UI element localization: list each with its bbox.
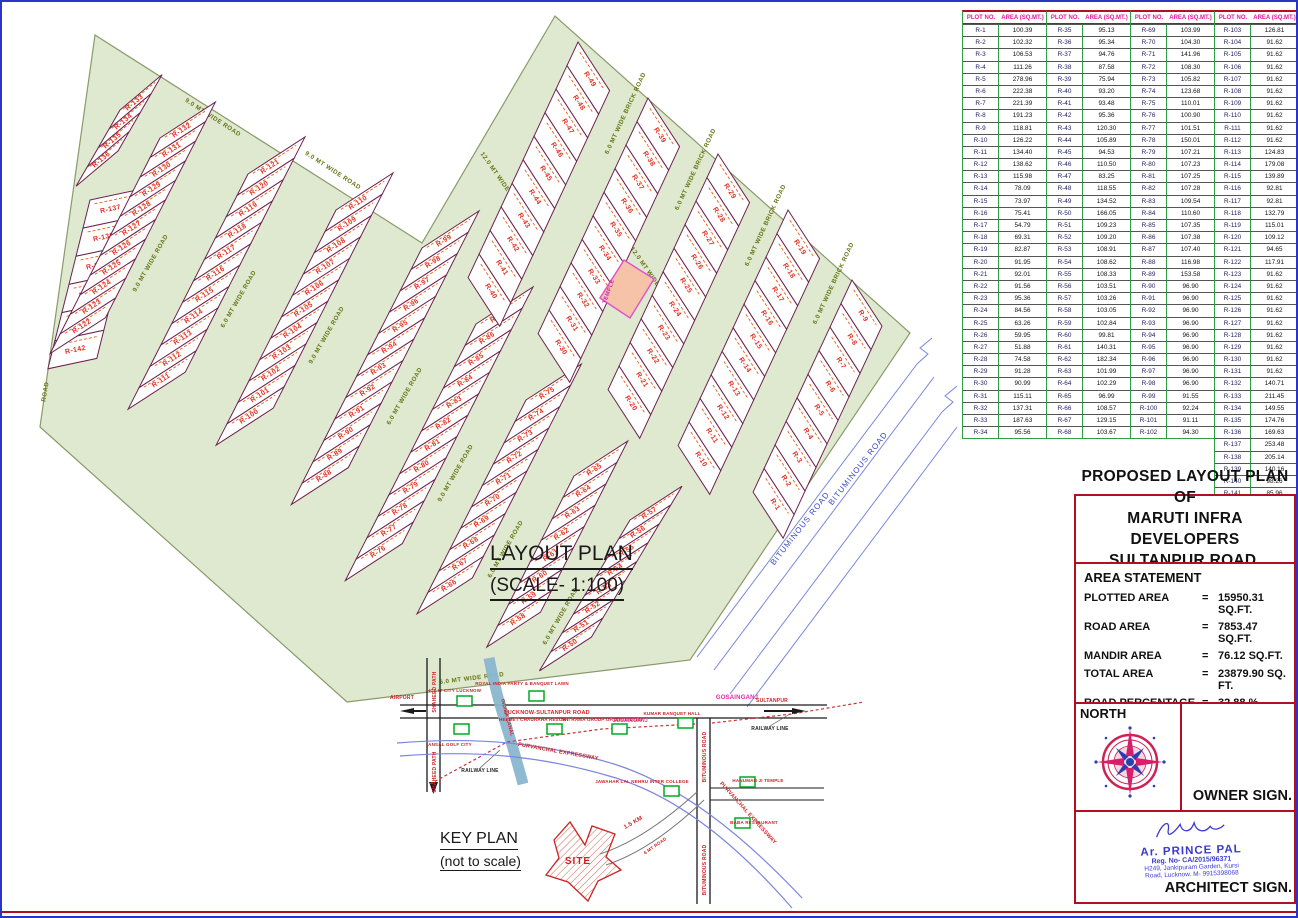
key-plan-title: KEY PLAN — [440, 830, 518, 850]
plot-no-cell: R-71 — [1131, 48, 1167, 60]
area-cell: 107.25 — [1167, 170, 1214, 182]
plot-no-cell: R-120 — [1215, 231, 1251, 243]
plot-no-cell: R-45 — [1047, 146, 1083, 158]
area-cell: 95.34 — [1083, 36, 1130, 48]
plot-no-cell: R-40 — [1047, 85, 1083, 97]
plot-no-cell: R-85 — [1131, 219, 1167, 231]
plot-no-cell: R-129 — [1215, 341, 1251, 353]
area-cell: 91.62 — [1251, 48, 1298, 60]
area-cell: 110.50 — [1083, 158, 1130, 170]
plot-no-cell: R-123 — [1215, 268, 1251, 280]
drawing-sheet: BITUMINOUS ROADBITUMINOUS ROAD9.0 MT WID… — [0, 0, 1298, 918]
area-cell: 95.36 — [1083, 109, 1130, 121]
area-statement-text: 76.12 SQ.FT. — [1218, 650, 1286, 662]
area-cell: 191.23 — [999, 109, 1046, 121]
plot-no-cell: R-36 — [1047, 36, 1083, 48]
plot-no-cell: R-84 — [1131, 207, 1167, 219]
area-statement-row: PLOTTED AREA=15950.31 SQ.FT. — [1084, 592, 1286, 616]
plot-no-cell: R-74 — [1131, 85, 1167, 97]
plot-no-cell: R-4 — [963, 61, 999, 73]
area-cell: 91.62 — [1251, 292, 1298, 304]
area-cell: 91.95 — [999, 256, 1046, 268]
area-statement: AREA STATEMENT PLOTTED AREA=15950.31 SQ.… — [1074, 562, 1296, 704]
plot-no-cell: R-62 — [1047, 353, 1083, 365]
area-cell: 73.97 — [999, 195, 1046, 207]
area-cell: 140.31 — [1083, 341, 1130, 353]
key-plan-label: GOSAINGANJ — [716, 695, 758, 701]
layout-plan-scale: (SCALE- 1:100) — [490, 575, 624, 601]
area-cell: 93.20 — [1083, 85, 1130, 97]
plot-no-cell: R-109 — [1215, 97, 1251, 109]
area-cell: 211.45 — [1251, 390, 1298, 402]
plot-no-cell: R-42 — [1047, 109, 1083, 121]
area-cell: 96.90 — [1167, 329, 1214, 341]
plot-no-cell: R-102 — [1131, 426, 1167, 438]
plot-no-cell: R-23 — [963, 292, 999, 304]
area-cell: 96.90 — [1167, 304, 1214, 316]
area-cell: 95.13 — [1083, 24, 1130, 36]
area-cell: 51.88 — [999, 341, 1046, 353]
plot-no-cell: R-31 — [963, 390, 999, 402]
layout-plan-title-block: LAYOUT PLAN (SCALE- 1:100) — [490, 542, 633, 601]
plot-no-cell: R-29 — [963, 365, 999, 377]
area-cell: 101.99 — [1083, 365, 1130, 377]
area-cell: 108.33 — [1083, 268, 1130, 280]
area-cell: 96.90 — [1167, 317, 1214, 329]
plot-no-cell: R-59 — [1047, 317, 1083, 329]
north-label: NORTH — [1080, 706, 1126, 721]
plot-no-cell: R-92 — [1131, 304, 1167, 316]
key-plan-label: BITUMINOUS ROAD — [702, 731, 708, 782]
plot-no-cell: R-53 — [1047, 243, 1083, 255]
plot-no-cell: R-131 — [1215, 365, 1251, 377]
area-cell: 106.53 — [999, 48, 1046, 60]
plot-no-cell: R-86 — [1131, 231, 1167, 243]
area-cell: 103.99 — [1167, 24, 1214, 36]
area-cell: 108.91 — [1083, 243, 1130, 255]
key-plan-label: ROYAL INDIA PARTY & BANQUET LAWN — [475, 681, 569, 686]
area-statement-text: = — [1202, 668, 1218, 692]
key-plan-label: HCL IT CITY LUCKNOW — [427, 688, 482, 693]
plot-no-cell: R-7 — [963, 97, 999, 109]
plot-no-cell: R-89 — [1131, 268, 1167, 280]
plot-no-cell: R-121 — [1215, 243, 1251, 255]
area-cell: 91.62 — [1251, 85, 1298, 97]
plot-no-cell: R-88 — [1131, 256, 1167, 268]
landmark-box — [612, 724, 627, 734]
sheet-frame-rule — [2, 911, 1296, 913]
plot-no-cell: R-90 — [1131, 280, 1167, 292]
owner-sign-label: OWNER SIGN. — [1182, 788, 1292, 804]
road-break-icon — [917, 338, 932, 364]
area-cell: 107.35 — [1167, 219, 1214, 231]
key-plan-label: PURVANCHAL EXPRESSWAY — [718, 781, 777, 846]
area-cell: 93.48 — [1083, 97, 1130, 109]
area-cell: 134.52 — [1083, 195, 1130, 207]
plot-no-header: PLOT NO. — [1047, 12, 1083, 24]
plot-no-cell: R-49 — [1047, 195, 1083, 207]
area-cell: 108.57 — [1083, 402, 1130, 414]
area-cell: 115.11 — [999, 390, 1046, 402]
plot-no-cell: R-91 — [1131, 292, 1167, 304]
area-cell: 96.90 — [1167, 341, 1214, 353]
plot-no-cell: R-97 — [1131, 365, 1167, 377]
area-cell: 109.20 — [1083, 231, 1130, 243]
key-road — [606, 800, 704, 865]
plot-no-cell: R-11 — [963, 146, 999, 158]
plot-no-cell: R-108 — [1215, 85, 1251, 97]
area-cell: 91.62 — [1251, 341, 1298, 353]
key-plan-label: BABA RESTAURANT — [730, 820, 778, 825]
plot-no-cell: R-48 — [1047, 182, 1083, 194]
title-line-1: PROPOSED LAYOUT PLAN OF — [1076, 466, 1294, 508]
plot-no-cell: R-34 — [963, 426, 999, 438]
plot-no-cell: R-107 — [1215, 73, 1251, 85]
landmark-box — [457, 696, 472, 706]
plot-no-cell: R-112 — [1215, 134, 1251, 146]
plot-no-cell: R-57 — [1047, 292, 1083, 304]
plot-no-cell: R-117 — [1215, 195, 1251, 207]
plot-no-cell: R-35 — [1047, 24, 1083, 36]
area-cell: 110.01 — [1167, 97, 1214, 109]
area-cell: 91.62 — [1251, 134, 1298, 146]
plot-no-cell: R-93 — [1131, 317, 1167, 329]
plot-no-cell: R-64 — [1047, 377, 1083, 389]
area-cell: 205.14 — [1251, 451, 1298, 463]
plot-no-cell: R-2 — [963, 36, 999, 48]
plot-no-cell: R-56 — [1047, 280, 1083, 292]
area-cell: 91.28 — [999, 365, 1046, 377]
plot-no-cell: R-16 — [963, 207, 999, 219]
area-cell: 91.62 — [1251, 36, 1298, 48]
area-cell: 221.39 — [999, 97, 1046, 109]
plot-no-cell: R-124 — [1215, 280, 1251, 292]
plot-no-cell: R-104 — [1215, 36, 1251, 48]
signature-icon — [1150, 819, 1231, 842]
plot-no-header: PLOT NO. — [963, 12, 999, 24]
area-cell: 105.82 — [1167, 73, 1214, 85]
area-cell: 109.23 — [1083, 219, 1130, 231]
area-cell: 84.56 — [999, 304, 1046, 316]
area-cell: 91.62 — [1251, 109, 1298, 121]
area-cell: 132.79 — [1251, 207, 1298, 219]
plot-no-cell: R-52 — [1047, 231, 1083, 243]
plot-no-cell: R-136 — [1215, 426, 1251, 438]
plot-no-cell: R-116 — [1215, 182, 1251, 194]
plot-no-cell: R-47 — [1047, 170, 1083, 182]
key-plan-label: LUCKNOW-SULTANPUR ROAD — [504, 710, 590, 716]
area-cell: 153.58 — [1167, 268, 1214, 280]
area-statement-text: TOTAL AREA — [1084, 668, 1202, 692]
plot-no-cell: R-3 — [963, 48, 999, 60]
plot-no-cell: R-58 — [1047, 304, 1083, 316]
plot-no-cell: R-137 — [1215, 438, 1251, 450]
area-cell: 95.56 — [999, 426, 1046, 438]
plot-table-column: PLOT NO.AREA (SQ.MT.)R-69103.99R-70104.3… — [1130, 10, 1215, 439]
plot-no-header: PLOT NO. — [1131, 12, 1167, 24]
area-cell: 87.58 — [1083, 61, 1130, 73]
plot-no-cell: R-70 — [1131, 36, 1167, 48]
plot-no-cell: R-100 — [1131, 402, 1167, 414]
plot-table-column: PLOT NO.AREA (SQ.MT.)R-3595.13R-3695.34R… — [1046, 10, 1131, 439]
plot-no-cell: R-19 — [963, 243, 999, 255]
area-cell: 103.67 — [1083, 426, 1130, 438]
plot-no-cell: R-22 — [963, 280, 999, 292]
area-cell: 83.25 — [1083, 170, 1130, 182]
layout-plan-title: LAYOUT PLAN — [490, 542, 633, 570]
area-cell: 107.28 — [1167, 182, 1214, 194]
area-statement-title: AREA STATEMENT — [1084, 570, 1286, 585]
area-cell: 91.62 — [1251, 365, 1298, 377]
plot-no-cell: R-83 — [1131, 195, 1167, 207]
plot-no-cell: R-82 — [1131, 182, 1167, 194]
plot-no-cell: R-51 — [1047, 219, 1083, 231]
area-cell: 100.90 — [1167, 109, 1214, 121]
architect-stamp: Ar. PRINCE PAL Reg. No- CA/2015/96371 H2… — [1105, 817, 1277, 881]
area-cell: 118.81 — [999, 122, 1046, 134]
landmark-box — [678, 718, 693, 728]
area-cell: 110.60 — [1167, 207, 1214, 219]
plot-no-cell: R-12 — [963, 158, 999, 170]
key-plan-label: SULTANPUR — [756, 698, 788, 704]
area-cell: 116.98 — [1167, 256, 1214, 268]
key-plan-label: RAILWAY LINE — [461, 768, 499, 774]
area-cell: 91.62 — [1251, 317, 1298, 329]
area-cell: 99.81 — [1083, 329, 1130, 341]
area-cell: 102.32 — [999, 36, 1046, 48]
plot-no-cell: R-99 — [1131, 390, 1167, 402]
plot-no-cell: R-103 — [1215, 24, 1251, 36]
area-cell: 69.31 — [999, 231, 1046, 243]
area-cell: 91.62 — [1251, 61, 1298, 73]
plot-no-cell: R-50 — [1047, 207, 1083, 219]
plot-no-cell: R-68 — [1047, 426, 1083, 438]
plot-no-cell: R-94 — [1131, 329, 1167, 341]
plot-no-cell: R-15 — [963, 195, 999, 207]
plot-no-cell: R-54 — [1047, 256, 1083, 268]
area-cell: 104.30 — [1167, 36, 1214, 48]
plot-no-cell: R-77 — [1131, 122, 1167, 134]
area-cell: 138.62 — [999, 158, 1046, 170]
area-cell: 91.62 — [1251, 329, 1298, 341]
site-marker-label: SITE — [565, 856, 591, 867]
plot-no-cell: R-134 — [1215, 402, 1251, 414]
plot-no-cell: R-24 — [963, 304, 999, 316]
plot-no-cell: R-27 — [963, 341, 999, 353]
area-statement-row: TOTAL AREA=23879.90 SQ. FT. — [1084, 668, 1286, 692]
area-cell: 94.76 — [1083, 48, 1130, 60]
key-plan-label: AIRPORT — [390, 695, 414, 701]
area-cell: 75.94 — [1083, 73, 1130, 85]
key-plan-label: ANSAL GOLF CITY — [428, 742, 472, 747]
plot-no-cell: R-110 — [1215, 109, 1251, 121]
plot-no-cell: R-25 — [963, 317, 999, 329]
plot-no-cell: R-65 — [1047, 390, 1083, 402]
plot-no-cell: R-10 — [963, 134, 999, 146]
road-break-icon — [942, 386, 957, 412]
area-statement-text: PLOTTED AREA — [1084, 592, 1202, 616]
area-cell: 118.55 — [1083, 182, 1130, 194]
plot-no-cell: R-127 — [1215, 317, 1251, 329]
plot-no-cell: R-67 — [1047, 414, 1083, 426]
area-cell: 107.21 — [1167, 146, 1214, 158]
plot-no-cell: R-130 — [1215, 353, 1251, 365]
area-cell: 108.30 — [1167, 61, 1214, 73]
area-cell: 141.96 — [1167, 48, 1214, 60]
area-cell: 150.01 — [1167, 134, 1214, 146]
plot-no-cell: R-138 — [1215, 451, 1251, 463]
key-plan-label: SHAHEED PATH — [432, 751, 438, 792]
key-plan-label: SRI RAMA GROUP OF INSTITUTES — [562, 717, 642, 722]
area-cell: 91.56 — [999, 280, 1046, 292]
plot-no-cell: R-8 — [963, 109, 999, 121]
plot-no-cell: R-87 — [1131, 243, 1167, 255]
key-plan-label: HANUMAN JI TEMPLE — [732, 778, 783, 783]
key-plan-label: 1.5 KM — [623, 815, 644, 830]
area-statement-text: = — [1202, 650, 1218, 662]
key-plan-label: BITUMINOUS ROAD — [702, 844, 708, 895]
area-cell: 102.84 — [1083, 317, 1130, 329]
area-cell: 109.54 — [1167, 195, 1214, 207]
area-cell: 95.36 — [999, 292, 1046, 304]
area-cell: 91.62 — [1251, 304, 1298, 316]
area-cell: 96.90 — [1167, 377, 1214, 389]
title-line-2: MARUTI INFRA DEVELOPERS — [1076, 508, 1294, 550]
plot-no-cell: R-5 — [963, 73, 999, 85]
area-cell: 91.62 — [1251, 97, 1298, 109]
area-cell: 174.76 — [1251, 414, 1298, 426]
plot-no-cell: R-101 — [1131, 414, 1167, 426]
area-cell: 75.41 — [999, 207, 1046, 219]
area-cell: 82.87 — [999, 243, 1046, 255]
area-cell: 109.12 — [1251, 231, 1298, 243]
area-cell: 74.58 — [999, 353, 1046, 365]
area-statement-text: 15950.31 SQ.FT. — [1218, 592, 1286, 616]
plot-no-cell: R-37 — [1047, 48, 1083, 60]
plot-no-cell: R-128 — [1215, 329, 1251, 341]
area-statement-text: MANDIR AREA — [1084, 650, 1202, 662]
plot-no-cell: R-80 — [1131, 158, 1167, 170]
plot-no-cell: R-60 — [1047, 329, 1083, 341]
area-cell: 92.81 — [1251, 182, 1298, 194]
area-cell: 126.81 — [1251, 24, 1298, 36]
plot-no-cell: R-26 — [963, 329, 999, 341]
area-cell: 54.79 — [999, 219, 1046, 231]
area-statement-row: MANDIR AREA=76.12 SQ.FT. — [1084, 650, 1286, 662]
plot-no-cell: R-113 — [1215, 146, 1251, 158]
plot-no-cell: R-41 — [1047, 97, 1083, 109]
area-cell: 129.15 — [1083, 414, 1130, 426]
plot-no-cell: R-111 — [1215, 122, 1251, 134]
key-plan-label: RAILWAY LINE — [751, 726, 789, 732]
key-plan-subtitle: (not to scale) — [440, 853, 521, 871]
area-statement-row: ROAD AREA=7853.47 SQ.FT. — [1084, 621, 1286, 645]
plot-no-cell: R-9 — [963, 122, 999, 134]
plot-no-cell: R-28 — [963, 353, 999, 365]
area-cell: 59.95 — [999, 329, 1046, 341]
area-cell: 115.98 — [999, 170, 1046, 182]
area-statement-text: ROAD AREA — [1084, 621, 1202, 645]
plot-no-cell: R-119 — [1215, 219, 1251, 231]
plot-no-cell: R-17 — [963, 219, 999, 231]
architect-sign-label: ARCHITECT SIGN. — [1142, 880, 1292, 896]
plot-table-column: PLOT NO.AREA (SQ.MT.)R-103126.81R-10491.… — [1214, 10, 1298, 513]
area-statement-text: 23879.90 SQ. FT. — [1218, 668, 1286, 692]
plot-no-cell: R-14 — [963, 182, 999, 194]
area-cell: 179.08 — [1251, 158, 1298, 170]
area-cell: 107.38 — [1167, 231, 1214, 243]
area-cell: 137.31 — [999, 402, 1046, 414]
area-cell: 92.01 — [999, 268, 1046, 280]
title-block: PROPOSED LAYOUT PLAN OF MARUTI INFRA DEV… — [1074, 494, 1296, 564]
area-cell: 103.05 — [1083, 304, 1130, 316]
plot-no-cell: R-18 — [963, 231, 999, 243]
plot-no-cell: R-133 — [1215, 390, 1251, 402]
area-cell: 78.09 — [999, 182, 1046, 194]
plot-no-cell: R-132 — [1215, 377, 1251, 389]
plot-no-cell: R-122 — [1215, 256, 1251, 268]
plot-no-cell: R-55 — [1047, 268, 1083, 280]
area-statement-text: 7853.47 SQ.FT. — [1218, 621, 1286, 645]
area-header: AREA (SQ.MT.) — [1251, 12, 1298, 24]
landmark-box — [547, 724, 562, 734]
area-cell: 120.30 — [1083, 122, 1130, 134]
plot-no-cell: R-1 — [963, 24, 999, 36]
area-cell: 105.89 — [1083, 134, 1130, 146]
area-cell: 101.51 — [1167, 122, 1214, 134]
plot-no-cell: R-39 — [1047, 73, 1083, 85]
plot-no-cell: R-21 — [963, 268, 999, 280]
area-cell: 134.40 — [999, 146, 1046, 158]
area-cell: 139.89 — [1251, 170, 1298, 182]
area-cell: 140.71 — [1251, 377, 1298, 389]
area-cell: 182.34 — [1083, 353, 1130, 365]
plot-no-header: PLOT NO. — [1215, 12, 1251, 24]
area-cell: 91.62 — [1251, 353, 1298, 365]
plot-no-cell: R-43 — [1047, 122, 1083, 134]
area-cell: 91.62 — [1251, 73, 1298, 85]
plot-no-cell: R-95 — [1131, 341, 1167, 353]
area-cell: 94.30 — [1167, 426, 1214, 438]
plot-no-cell: R-61 — [1047, 341, 1083, 353]
arrow-right-icon — [792, 708, 806, 714]
area-cell: 169.63 — [1251, 426, 1298, 438]
area-cell: 92.81 — [1251, 195, 1298, 207]
area-cell: 222.38 — [999, 85, 1046, 97]
plot-no-cell: R-38 — [1047, 61, 1083, 73]
leader-line — [480, 750, 500, 768]
area-cell: 166.05 — [1083, 207, 1130, 219]
plot-no-cell: R-96 — [1131, 353, 1167, 365]
area-header: AREA (SQ.MT.) — [999, 12, 1046, 24]
area-cell: 115.01 — [1251, 219, 1298, 231]
area-cell: 96.90 — [1167, 280, 1214, 292]
plot-no-cell: R-33 — [963, 414, 999, 426]
plot-no-cell: R-126 — [1215, 304, 1251, 316]
area-cell: 103.51 — [1083, 280, 1130, 292]
plot-no-cell: R-78 — [1131, 134, 1167, 146]
plot-no-cell: R-73 — [1131, 73, 1167, 85]
plot-no-cell: R-6 — [963, 85, 999, 97]
plot-no-cell: R-72 — [1131, 61, 1167, 73]
area-cell: 63.26 — [999, 317, 1046, 329]
area-cell: 123.68 — [1167, 85, 1214, 97]
area-cell: 91.62 — [1251, 280, 1298, 292]
plot-no-cell: R-98 — [1131, 377, 1167, 389]
plot-no-cell: R-13 — [963, 170, 999, 182]
area-cell: 96.90 — [1167, 353, 1214, 365]
area-statement-text: = — [1202, 621, 1218, 645]
